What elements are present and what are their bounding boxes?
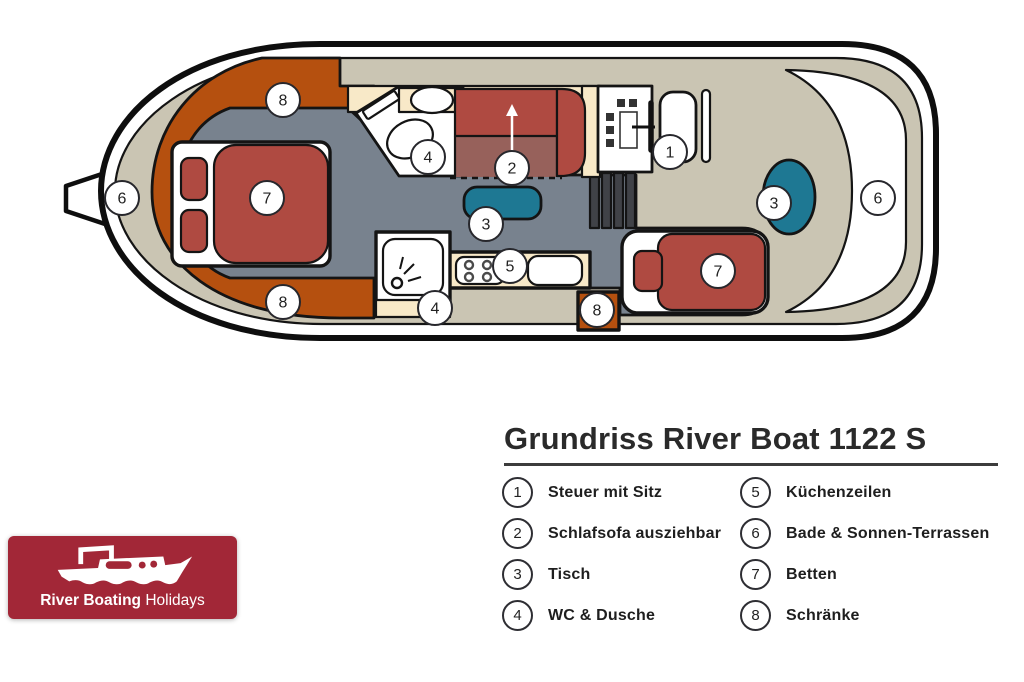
pillow [181,210,207,252]
legend-number: 3 [502,559,533,590]
plan-marker: 8 [266,83,300,117]
legend-number: 1 [502,477,533,508]
legend-item: 5 Küchenzeilen [740,477,1024,508]
legend-label: Schränke [786,607,860,625]
legend-number: 2 [502,518,533,549]
legend-item: 3 Tisch [502,559,740,590]
legend-label: Schlafsofa ausziehbar [548,525,721,543]
kitchen-sink [528,256,582,285]
svg-text:3: 3 [770,196,779,213]
svg-text:4: 4 [431,301,440,318]
plan-marker: 7 [701,254,735,288]
legend-number: 4 [502,600,533,631]
legend-item: 7 Betten [740,559,1024,590]
plan-marker: 3 [757,186,791,220]
svg-text:8: 8 [279,93,288,110]
logo-boat-icon [43,543,203,591]
pillow [181,158,207,200]
rear-bed [622,231,768,313]
legend-column-2: 5 Küchenzeilen 6 Bade & Sonnen-Terrassen… [740,477,1024,641]
plan-marker: 7 [250,181,284,215]
svg-text:6: 6 [118,191,127,208]
plan-marker: 8 [266,285,300,319]
plan-marker: 6 [105,181,139,215]
svg-text:6: 6 [874,191,883,208]
legend-item: 2 Schlafsofa ausziehbar [502,518,740,549]
legend-label: Betten [786,566,837,584]
svg-text:7: 7 [714,264,723,281]
legend-item: 1 Steuer mit Sitz [502,477,740,508]
legend-label: WC & Dusche [548,607,655,625]
svg-text:1: 1 [666,145,675,162]
legend-label: Küchenzeilen [786,484,892,502]
svg-text:2: 2 [508,161,517,178]
legend-column-1: 1 Steuer mit Sitz 2 Schlafsofa ausziehba… [502,477,740,641]
shower-drain-icon [392,278,402,288]
plan-marker: 4 [411,140,445,174]
plan-marker: 6 [861,181,895,215]
plan-marker: 5 [493,249,527,283]
svg-text:8: 8 [279,295,288,312]
plan-marker: 3 [469,207,503,241]
svg-text:8: 8 [593,303,602,320]
svg-text:4: 4 [424,150,433,167]
page-title: Grundriss River Boat 1122 S [504,421,998,466]
legend-number: 7 [740,559,771,590]
wc-sink [411,87,453,113]
legend-number: 5 [740,477,771,508]
boat-floor-plan: 6 8 7 8 4 2 3 5 4 8 1 7 3 6 [40,30,960,350]
legend: 1 Steuer mit Sitz 2 Schlafsofa ausziehba… [502,477,1024,641]
legend-label: Tisch [548,566,591,584]
plan-marker: 1 [653,135,687,169]
helm-seat-back [702,90,710,162]
river-boating-logo: River Boating Holidays [8,536,237,619]
pillow [634,251,662,291]
legend-item: 8 Schränke [740,600,1024,631]
svg-text:3: 3 [482,217,491,234]
plan-marker: 8 [580,293,614,327]
legend-number: 6 [740,518,771,549]
legend-item: 4 WC & Dusche [502,600,740,631]
page: 6 8 7 8 4 2 3 5 4 8 1 7 3 6 Grundriss Ri… [0,0,1024,682]
legend-label: Bade & Sonnen-Terrassen [786,525,989,543]
plan-marker: 4 [418,291,452,325]
svg-text:5: 5 [506,259,515,276]
legend-label: Steuer mit Sitz [548,484,662,502]
plan-marker: 2 [495,151,529,185]
logo-wordmark: River Boating Holidays [40,592,205,610]
svg-text:7: 7 [263,191,272,208]
legend-number: 8 [740,600,771,631]
legend-item: 6 Bade & Sonnen-Terrassen [740,518,1024,549]
